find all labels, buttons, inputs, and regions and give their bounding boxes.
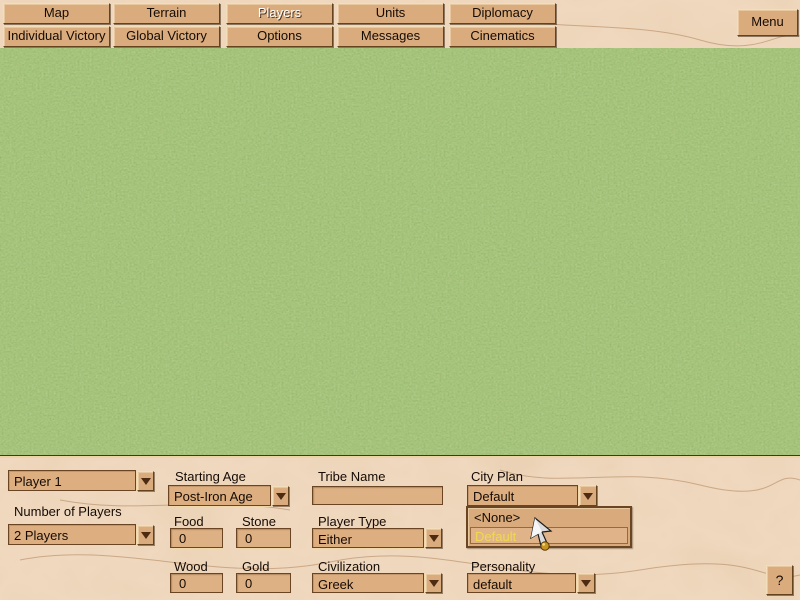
chevron-down-icon xyxy=(141,478,151,485)
scenario-editor-window: Map Terrain Players Units Diplomacy Indi… xyxy=(0,0,800,600)
player-type-label: Player Type xyxy=(318,514,386,529)
tab-terrain[interactable]: Terrain xyxy=(113,3,220,24)
tab-messages[interactable]: Messages xyxy=(337,26,444,47)
civilization-combobox[interactable]: Greek xyxy=(312,573,424,593)
food-input[interactable]: 0 xyxy=(170,528,223,548)
editor-toolbar: Map Terrain Players Units Diplomacy Indi… xyxy=(0,0,800,48)
tab-units[interactable]: Units xyxy=(337,3,444,24)
chevron-down-icon xyxy=(429,535,439,542)
civilization-dropdown-button[interactable] xyxy=(425,573,442,593)
help-button[interactable]: ? xyxy=(766,565,793,595)
chevron-down-icon xyxy=(581,580,591,587)
wood-input[interactable]: 0 xyxy=(170,573,223,593)
personality-label: Personality xyxy=(471,559,535,574)
civilization-label: Civilization xyxy=(318,559,380,574)
personality-combobox[interactable]: default xyxy=(467,573,576,593)
tab-cinematics[interactable]: Cinematics xyxy=(449,26,556,47)
grass-texture xyxy=(0,48,800,455)
player-type-dropdown-button[interactable] xyxy=(425,528,442,548)
number-of-players-label: Number of Players xyxy=(14,504,122,519)
city-plan-combobox[interactable]: Default xyxy=(467,485,578,506)
tab-options[interactable]: Options xyxy=(226,26,333,47)
starting-age-combobox[interactable]: Post-Iron Age xyxy=(168,485,271,506)
number-of-players-combobox[interactable]: 2 Players xyxy=(8,524,136,545)
personality-dropdown-button[interactable] xyxy=(577,573,595,593)
terrain-map-canvas[interactable] xyxy=(0,48,800,455)
mouse-cursor-icon xyxy=(528,517,560,553)
stone-label: Stone xyxy=(242,514,276,529)
number-of-players-dropdown-button[interactable] xyxy=(137,525,154,545)
starting-age-label: Starting Age xyxy=(175,469,246,484)
player-selector-dropdown-button[interactable] xyxy=(137,471,154,491)
gold-label: Gold xyxy=(242,559,269,574)
player-selector-combobox[interactable]: Player 1 xyxy=(8,470,136,491)
gold-input[interactable]: 0 xyxy=(236,573,291,593)
tab-players[interactable]: Players xyxy=(226,3,333,24)
stone-input[interactable]: 0 xyxy=(236,528,291,548)
city-plan-dropdown-button[interactable] xyxy=(579,485,597,506)
player-type-combobox[interactable]: Either xyxy=(312,528,424,548)
wood-label: Wood xyxy=(174,559,208,574)
starting-age-dropdown-button[interactable] xyxy=(272,486,289,506)
menu-button[interactable]: Menu xyxy=(737,9,798,36)
food-label: Food xyxy=(174,514,204,529)
tab-individual-victory[interactable]: Individual Victory xyxy=(3,26,110,47)
tab-diplomacy[interactable]: Diplomacy xyxy=(449,3,556,24)
city-plan-label: City Plan xyxy=(471,469,523,484)
chevron-down-icon xyxy=(276,493,286,500)
chevron-down-icon xyxy=(429,580,439,587)
tribe-name-input[interactable] xyxy=(312,486,443,505)
chevron-down-icon xyxy=(583,493,593,500)
chevron-down-icon xyxy=(141,532,151,539)
tab-global-victory[interactable]: Global Victory xyxy=(113,26,220,47)
tab-map[interactable]: Map xyxy=(3,3,110,24)
tribe-name-label: Tribe Name xyxy=(318,469,385,484)
players-settings-panel: Player 1 Number of Players 2 Players Sta… xyxy=(0,455,800,600)
